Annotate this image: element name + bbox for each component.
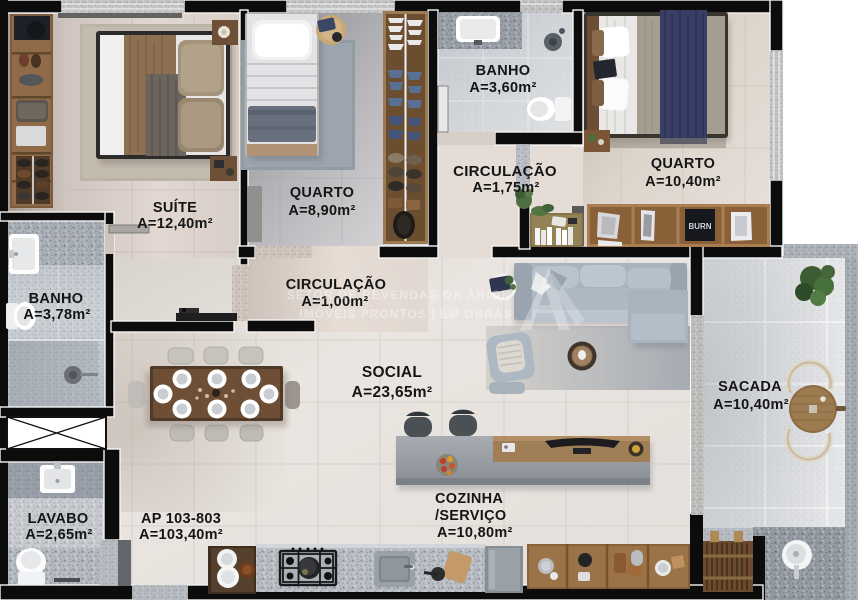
svg-text:A=10,40m²: A=10,40m² [645, 174, 721, 190]
svg-text:A=1,75m²: A=1,75m² [472, 180, 539, 196]
svg-text:A=3,78m²: A=3,78m² [23, 307, 90, 323]
svg-text:BANHO: BANHO [29, 291, 84, 307]
svg-text:A=2,65m²: A=2,65m² [25, 527, 92, 543]
svg-text:CIRCULAÇÃO: CIRCULAÇÃO [453, 162, 557, 180]
svg-text:A=10,80m²: A=10,80m² [437, 525, 513, 541]
svg-text:A=8,90m²: A=8,90m² [288, 203, 355, 219]
svg-text:AP 103-803: AP 103-803 [141, 511, 221, 527]
svg-text:SACADA: SACADA [718, 379, 782, 395]
svg-text:QUARTO: QUARTO [290, 185, 354, 201]
svg-text:A=23,65m²: A=23,65m² [352, 384, 433, 401]
svg-text:QUARTO: QUARTO [651, 156, 715, 172]
svg-text:/SERVIÇO: /SERVIÇO [435, 508, 506, 524]
svg-text:A=3,60m²: A=3,60m² [469, 80, 536, 96]
svg-text:BANHO: BANHO [476, 63, 531, 79]
svg-text:SUÍTE: SUÍTE [153, 199, 197, 216]
svg-text:SOCIAL: SOCIAL [362, 364, 422, 381]
svg-text:A=103,40m²: A=103,40m² [139, 527, 223, 543]
svg-text:LAVABO: LAVABO [28, 511, 89, 527]
svg-text:IMÓVEIS PRONTOS | EM OBRAS: IMÓVEIS PRONTOS | EM OBRAS [299, 306, 512, 321]
svg-text:BURN: BURN [688, 222, 711, 231]
svg-text:A=10,40m²: A=10,40m² [713, 397, 789, 413]
svg-text:COZINHA: COZINHA [435, 491, 503, 507]
svg-text:A=12,40m²: A=12,40m² [137, 216, 213, 232]
svg-text:SETOR DE REVENDAS DA ÁRION: SETOR DE REVENDAS DA ÁRION [287, 287, 512, 302]
